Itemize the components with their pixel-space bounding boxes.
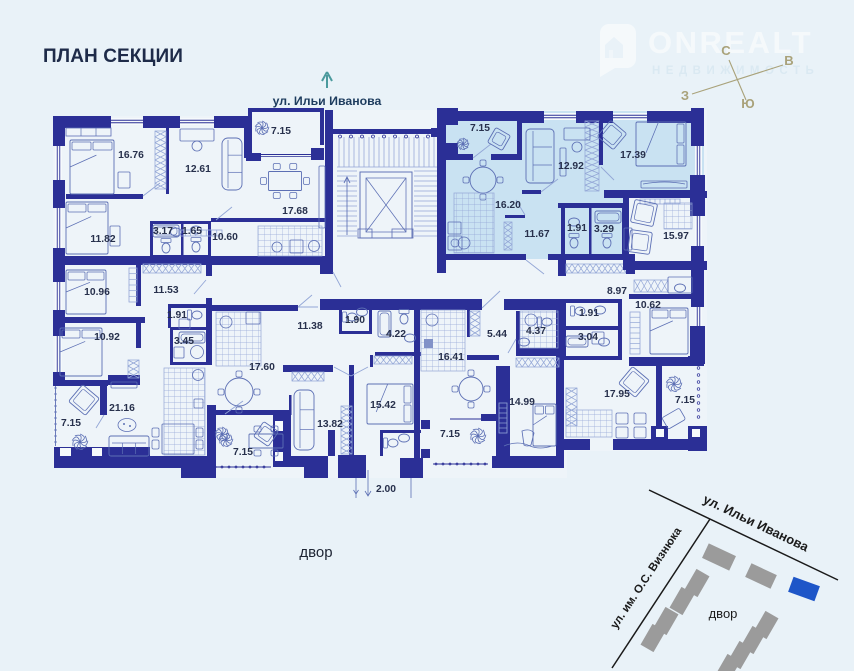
svg-text:15.97: 15.97 — [663, 231, 689, 242]
svg-text:С: С — [721, 43, 731, 58]
svg-text:17.60: 17.60 — [249, 362, 275, 373]
svg-text:3.17: 3.17 — [153, 226, 173, 237]
svg-text:13.82: 13.82 — [317, 419, 343, 430]
svg-text:12.61: 12.61 — [185, 164, 211, 175]
svg-text:17.39: 17.39 — [620, 150, 646, 161]
svg-text:14.99: 14.99 — [509, 397, 535, 408]
svg-text:17.68: 17.68 — [282, 206, 308, 217]
svg-text:7.15: 7.15 — [675, 395, 695, 406]
svg-text:16.20: 16.20 — [495, 200, 521, 211]
svg-text:3.04: 3.04 — [578, 332, 598, 343]
svg-text:Ю: Ю — [741, 96, 754, 111]
svg-text:17.95: 17.95 — [604, 389, 630, 400]
svg-text:1.91: 1.91 — [579, 308, 599, 319]
svg-text:двор: двор — [299, 544, 332, 561]
svg-text:11.82: 11.82 — [90, 234, 115, 245]
svg-text:4.37: 4.37 — [526, 326, 546, 337]
svg-text:4.22: 4.22 — [386, 329, 406, 340]
svg-text:7.15: 7.15 — [440, 429, 460, 440]
svg-text:ПЛАН СЕКЦИИ: ПЛАН СЕКЦИИ — [43, 46, 183, 67]
svg-text:8.97: 8.97 — [607, 286, 627, 297]
svg-text:11.38: 11.38 — [297, 321, 322, 332]
svg-text:16.76: 16.76 — [118, 150, 144, 161]
svg-text:10.96: 10.96 — [84, 287, 110, 298]
svg-text:двор: двор — [709, 606, 738, 621]
svg-text:1.91: 1.91 — [567, 223, 587, 234]
svg-text:1.90: 1.90 — [345, 315, 365, 326]
svg-text:10.92: 10.92 — [94, 332, 120, 343]
svg-text:12.92: 12.92 — [558, 161, 584, 172]
svg-text:3.45: 3.45 — [174, 336, 194, 347]
svg-text:З: З — [681, 88, 689, 103]
svg-text:16.41: 16.41 — [438, 352, 464, 363]
svg-text:10.60: 10.60 — [212, 232, 238, 243]
svg-text:7.15: 7.15 — [61, 418, 81, 429]
svg-text:15.42: 15.42 — [370, 400, 396, 411]
svg-text:11.53: 11.53 — [153, 285, 178, 296]
svg-text:1.65: 1.65 — [182, 226, 202, 237]
svg-text:10.62: 10.62 — [635, 300, 661, 311]
svg-text:3.29: 3.29 — [594, 224, 614, 235]
svg-text:1.91: 1.91 — [167, 310, 187, 321]
svg-text:11.67: 11.67 — [524, 229, 549, 240]
svg-text:7.15: 7.15 — [271, 126, 291, 137]
svg-text:В: В — [784, 53, 793, 68]
svg-text:7.15: 7.15 — [233, 447, 253, 458]
svg-text:21.16: 21.16 — [109, 403, 135, 414]
svg-text:5.44: 5.44 — [487, 329, 507, 340]
svg-text:ул. Ильи Иванова: ул. Ильи Иванова — [273, 94, 382, 108]
svg-text:2.00: 2.00 — [376, 484, 396, 495]
svg-text:7.15: 7.15 — [470, 123, 490, 134]
